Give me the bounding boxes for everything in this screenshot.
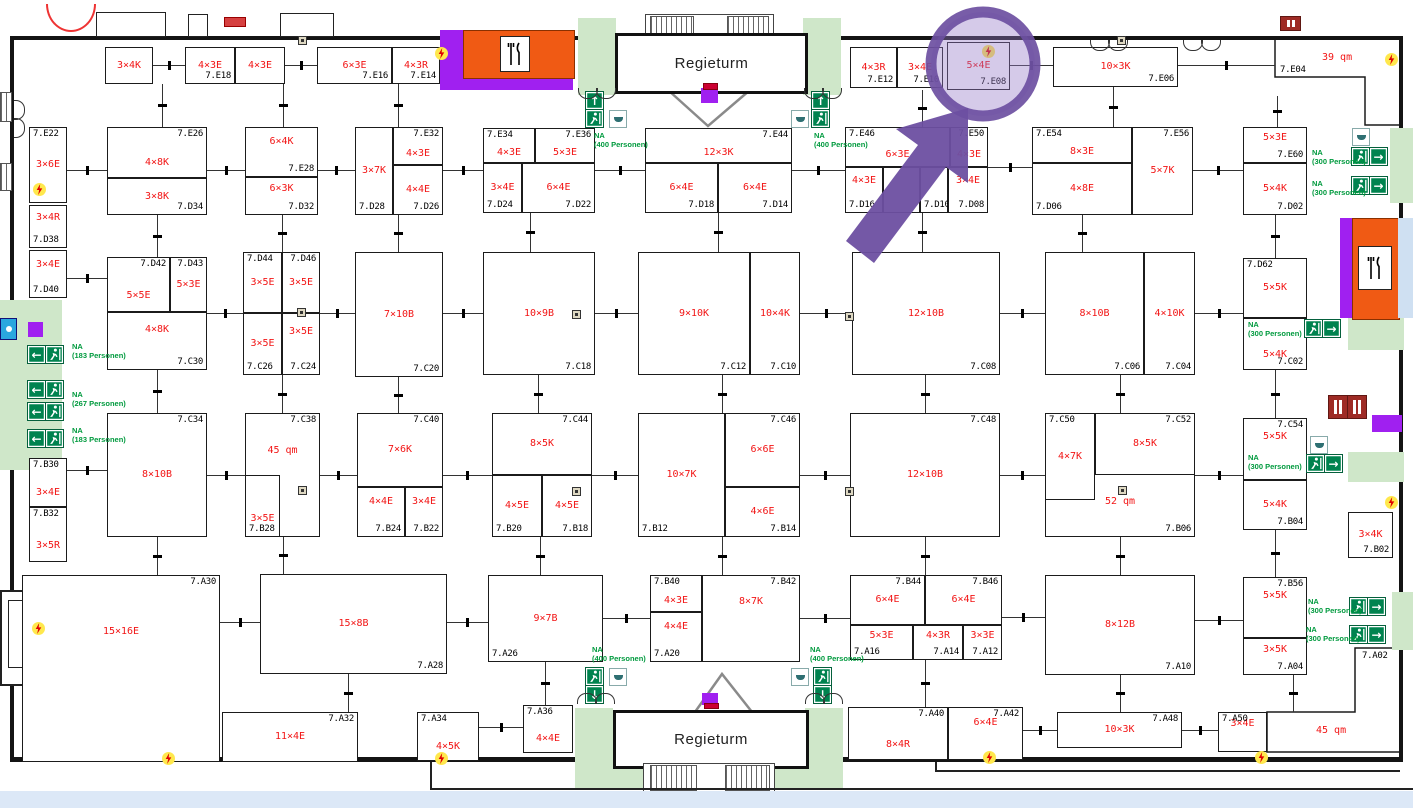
booth-7.E34[interactable]: 4×3E7.E34 xyxy=(483,128,535,163)
booth-7.A14[interactable]: 4×3R7.A14 xyxy=(913,625,963,660)
booth-7.A36[interactable]: 4×4E7.A36 xyxy=(523,705,573,753)
exit-running-man-icon xyxy=(814,668,831,685)
exit-running-man-icon xyxy=(586,668,603,685)
booth-size-label: 12×10B xyxy=(851,470,999,480)
door-swing-arc xyxy=(14,100,25,120)
booth-size-label: 4×3E xyxy=(651,596,701,606)
booth-size-label: 15×16E xyxy=(23,627,219,637)
fork-knife-icon xyxy=(1365,255,1385,281)
power-supply-icon xyxy=(1385,496,1398,509)
floor-socket-icon xyxy=(845,312,854,321)
booth-7.C26[interactable]: 3×5E7.C26 xyxy=(243,313,282,375)
booth-7.A04[interactable]: 3×5K7.A04 xyxy=(1243,638,1307,675)
blue-zone-right xyxy=(1398,218,1413,318)
dimension-tick xyxy=(1271,393,1280,396)
booth-7.D18[interactable]: 6×4E7.D18 xyxy=(645,163,718,213)
dimension-tick xyxy=(1039,726,1042,735)
booth-number-label: 7.D28 xyxy=(359,203,385,212)
booth-number-label: 7.A48 xyxy=(1152,715,1178,724)
na-capacity-label: NA(400 Personen) xyxy=(814,131,868,149)
dimension-tick xyxy=(1217,166,1220,175)
booth-7.B46[interactable]: 6×4E7.B46 xyxy=(925,575,1002,625)
marker xyxy=(704,703,719,709)
booth-size-label: 8×10B xyxy=(108,470,206,480)
booth-number-label: 7.B28 xyxy=(249,525,275,534)
booth-size-label: 3×7K xyxy=(356,166,392,176)
booth-7.D16[interactable]: 4×3E7.D16 xyxy=(845,167,883,213)
booth-number-label: 7.E26 xyxy=(177,130,203,139)
booth-number-label: 7.C08 xyxy=(970,363,996,372)
dimension-tick xyxy=(718,555,727,558)
booth-number-label: 7.A28 xyxy=(417,662,443,671)
booth-7.D06[interactable]: 4×8E7.D06 xyxy=(1032,163,1132,215)
booth-size-label: 6×3E xyxy=(846,150,949,160)
exit-arrow-icon: ← xyxy=(28,430,45,447)
dimension-tick xyxy=(1116,393,1125,396)
booth-label: 7.E04 xyxy=(1280,66,1306,75)
booth-7.D02[interactable]: 5×4K7.D02 xyxy=(1243,163,1307,215)
booth-size-label: 5×4K xyxy=(1244,500,1306,510)
power-supply-icon xyxy=(1385,53,1398,66)
booth-7.C46[interactable]: 6×6E7.C46 xyxy=(725,413,800,487)
booth-number-label: 7.B32 xyxy=(33,510,59,519)
booth-size-label: 4×3R xyxy=(393,61,439,71)
service-point xyxy=(701,88,718,103)
booth-7.C24[interactable]: 3×5E7.C24 xyxy=(282,313,320,375)
na-capacity-label: NA(183 Personen) xyxy=(72,342,126,360)
booth-7.E50[interactable]: 4×3E7.E50 xyxy=(950,127,988,167)
booth-7.C30[interactable]: 4×8K7.C30 xyxy=(107,312,207,370)
booth-size-label: 5×5K xyxy=(1244,591,1306,601)
booth-number-label: 7.E06 xyxy=(1148,75,1174,84)
emergency-exit-sign: → xyxy=(1307,455,1342,472)
dimension-tick xyxy=(224,309,227,318)
booth-7.D34[interactable]: 3×8K7.D34 xyxy=(107,178,207,215)
booth-size-label: 5×3E xyxy=(1244,133,1306,143)
booth-7.E26[interactable]: 4×8K7.E26 xyxy=(107,127,207,178)
exit-arrow-icon: → xyxy=(1370,177,1387,194)
door-swing-arc xyxy=(14,118,25,138)
booth-size-label: 6×6E xyxy=(726,445,799,455)
booth-7.E08[interactable]: 5×4E7.E08 xyxy=(947,42,1010,90)
exit-running-man-icon xyxy=(46,430,63,447)
booth-number-label: 7.C26 xyxy=(247,363,273,372)
dimension-tick xyxy=(534,393,543,396)
booth-size-label: 11×4E xyxy=(223,732,357,742)
booth-number-label: 7.E60 xyxy=(1277,151,1303,160)
booth-4×3E[interactable]: 4×3E xyxy=(235,47,285,84)
booth-7.D14[interactable]: 6×4E7.D14 xyxy=(718,163,792,213)
booth-number-label: 7.B18 xyxy=(562,525,588,534)
booth-7.B32[interactable]: 3×5R7.B32 xyxy=(29,507,67,562)
booth-7.A20[interactable]: 4×4E7.A20 xyxy=(650,612,702,662)
booth-size-label: 4×3R xyxy=(851,63,896,73)
booth-7.A26[interactable]: 9×7B7.A26 xyxy=(488,575,603,662)
na-capacity-label: NA(300 Personen) xyxy=(1308,597,1362,615)
booth-number-label: 7.E32 xyxy=(413,130,439,139)
booth-7.C06[interactable]: 8×10B7.C06 xyxy=(1045,252,1144,375)
dimension-tick xyxy=(718,393,727,396)
booth-7.C40[interactable]: 7×6K7.C40 xyxy=(357,413,443,487)
exit-arrow-icon: → xyxy=(1368,626,1385,643)
booth-size-label: 4×6E xyxy=(726,507,799,517)
booth-number-label: 7.E22 xyxy=(33,130,59,139)
exit-running-man-icon xyxy=(46,346,63,363)
dimension-tick xyxy=(1009,163,1012,172)
booth-7.A10[interactable]: 8×12B7.A10 xyxy=(1045,575,1195,675)
power-supply-icon xyxy=(32,622,45,635)
booth-7.D10[interactable]: 7.D10 xyxy=(920,167,948,213)
booth-size-label: 3×4K xyxy=(106,61,152,71)
booth-size-label: 8×3E xyxy=(1033,147,1131,157)
dimension-tick xyxy=(278,393,287,396)
regieturm-bottom-label: Regieturm xyxy=(674,731,748,748)
booth-number-label: 7.C54 xyxy=(1277,421,1303,430)
booth-number-label: 7.A40 xyxy=(918,710,944,719)
booth-7.A48[interactable]: 10×3K7.A48 xyxy=(1057,712,1182,748)
booth-7.B42[interactable]: 8×7K7.B42 xyxy=(702,575,800,662)
booth-cell[interactable] xyxy=(883,167,920,213)
toilet-fixture-right xyxy=(280,13,334,37)
stairs-top-left xyxy=(650,16,694,34)
dimension-tick xyxy=(168,61,171,70)
booth-number-label: 7.B22 xyxy=(413,525,439,534)
dimension-tick xyxy=(1218,471,1221,480)
booth-size-label: 3×5K xyxy=(1244,645,1306,655)
booth-7.B30[interactable]: 3×4E7.B30 xyxy=(29,458,67,507)
dimension-tick xyxy=(394,104,403,107)
booth-7.E12[interactable]: 4×3R7.E12 xyxy=(850,47,897,88)
booth-7.C50[interactable]: 4×7K7.C50 xyxy=(1045,413,1095,500)
water-point-icon xyxy=(0,318,17,340)
booth-number-label: 7.C40 xyxy=(413,416,439,425)
booth-number-label: 7.D43 xyxy=(177,260,203,269)
booth-7.A12[interactable]: 3×3E7.A12 xyxy=(963,625,1002,660)
escape-zone-right-bottom xyxy=(1392,592,1413,650)
booth-number-label: 7.B46 xyxy=(972,578,998,587)
booth-number-label: 7.D38 xyxy=(33,236,59,245)
booth-7.C20[interactable]: 7×10B7.C20 xyxy=(355,252,443,377)
booth-size-label: 6×4E xyxy=(646,183,717,193)
booth-size-label: 10×4K xyxy=(751,309,799,319)
booth-7.E54[interactable]: 8×3E7.E54 xyxy=(1032,127,1132,163)
booth-size-label: 6×4K xyxy=(246,137,317,147)
booth-number-label: 7.D24 xyxy=(487,201,513,210)
dimension-tick xyxy=(619,166,622,175)
booth-size-label: 5×3E xyxy=(171,280,206,290)
dimension-tick xyxy=(278,232,287,235)
booth-7.B28[interactable]: 3×5E7.B28 xyxy=(245,475,280,537)
dimension-tick xyxy=(344,692,353,695)
booth-7.D44[interactable]: 3×5E7.D44 xyxy=(243,252,282,313)
booth-number-label: 7.E14 xyxy=(410,72,436,81)
booth-7.D43[interactable]: 5×3E7.D43 xyxy=(170,257,207,312)
emergency-exit-sign: ← xyxy=(28,346,63,363)
toilet-fixture-left xyxy=(96,12,166,37)
booth-7.D22[interactable]: 6×4E7.D22 xyxy=(522,163,595,213)
booth-7.E36[interactable]: 5×3E7.E36 xyxy=(535,128,595,163)
booth-7.E44[interactable]: 12×3K7.E44 xyxy=(645,128,792,163)
regieturm-top-label: Regieturm xyxy=(675,55,749,72)
booth-number-label: 7.B40 xyxy=(654,578,680,587)
floor-socket-icon xyxy=(297,308,306,317)
dimension-tick xyxy=(918,107,927,110)
dimension-tick xyxy=(615,309,618,318)
na-capacity-label: NA(300 Personen) xyxy=(1306,625,1360,643)
booth-number-label: 7.E50 xyxy=(958,130,984,139)
booth-7.C44[interactable]: 8×5K7.C44 xyxy=(492,413,592,475)
dimension-tick xyxy=(1271,235,1280,238)
booth-7.B40[interactable]: 4×3E7.B40 xyxy=(650,575,702,612)
booth-7.E06[interactable]: 10×3K7.E06 xyxy=(1053,47,1178,87)
restaurant-top-icon-box xyxy=(500,36,530,72)
outside-line-1 xyxy=(935,770,1400,772)
booth-number-label: 7.A26 xyxy=(492,650,518,659)
booth-7.E28[interactable]: 6×4K7.E28 xyxy=(245,127,318,177)
booth-number-label: 7.B56 xyxy=(1277,580,1303,589)
service-sign-icon xyxy=(1310,436,1328,454)
service-sign-icon xyxy=(791,668,809,686)
booth-7.E14[interactable]: 4×3R7.E14 xyxy=(392,47,440,84)
dimension-tick xyxy=(1289,692,1298,695)
floor-socket-icon xyxy=(298,36,307,45)
dimension-tick xyxy=(817,166,820,175)
booth-size-label: 7×10B xyxy=(356,310,442,320)
dimension-tick xyxy=(466,618,469,627)
booth-size-label: 4×3E xyxy=(951,150,987,160)
exit-arrow-icon: → xyxy=(1323,320,1340,337)
booth-7.C08[interactable]: 12×10B7.C08 xyxy=(852,252,1000,375)
booth-number-label: 7.E12 xyxy=(867,76,893,85)
booth-size-label: 5×7K xyxy=(1133,166,1192,176)
booth-size-label: 4×3R xyxy=(914,631,962,641)
booth-7.B20[interactable]: 4×5E7.B20 xyxy=(492,475,542,537)
dimension-tick xyxy=(824,614,827,623)
dimension-tick xyxy=(337,471,340,480)
outside-line-4 xyxy=(935,762,937,771)
dimension-tick xyxy=(86,466,89,475)
stairs-top-right xyxy=(727,16,769,34)
dimension-tick xyxy=(921,393,930,396)
booth-number-label: 7.D22 xyxy=(565,201,591,210)
booth-number-label: 7.E44 xyxy=(762,131,788,140)
fire-equipment-icon xyxy=(1280,16,1301,31)
booth-number-label: 7.A14 xyxy=(933,648,959,657)
booth-size-label: 4×3E xyxy=(394,149,442,159)
booth-7.B12[interactable]: 10×7K7.B12 xyxy=(638,413,725,537)
booth-7.D28[interactable]: 3×7K7.D28 xyxy=(355,127,393,215)
booth-number-label: 7.A36 xyxy=(527,708,553,717)
booth-size-label: 5×3E xyxy=(536,148,594,158)
escape-zone-right-top xyxy=(1390,128,1413,203)
bench-icon xyxy=(224,17,246,27)
dimension-tick xyxy=(526,231,535,234)
booth-number-label: 7.D06 xyxy=(1036,203,1062,212)
service-point xyxy=(28,322,43,337)
hall-floorplan: Regieturm Regieturm 3×4K4×3E7.E184×3E6×3… xyxy=(0,0,1413,808)
booth-size-label: 7×6K xyxy=(358,445,442,455)
dimension-tick xyxy=(158,104,167,107)
booth-number-label: 7.E18 xyxy=(205,72,231,81)
booth-label: 39 qm xyxy=(1322,53,1352,63)
booth-7.D08[interactable]: 3×4E7.D08 xyxy=(948,167,988,213)
booth-7.D38[interactable]: 3×4R7.D38 xyxy=(29,205,67,248)
booth-size-label: 3×4E xyxy=(898,63,942,73)
booth-number-label: 7.C04 xyxy=(1165,363,1191,372)
booth-size-label: 8×5K xyxy=(1096,439,1194,449)
booth-7.C10[interactable]: 10×4K7.C10 xyxy=(750,252,800,375)
booth-7.A32[interactable]: 11×4E7.A32 xyxy=(222,712,358,762)
booth-label: 45 qm xyxy=(1316,726,1346,736)
booth-7.A28[interactable]: 15×8B7.A28 xyxy=(260,574,447,674)
booth-7.E32[interactable]: 4×3E7.E32 xyxy=(393,127,443,165)
booth-number-label: 7.C48 xyxy=(970,416,996,425)
booth-number-label: 7.C50 xyxy=(1049,416,1075,425)
booth-7.D40[interactable]: 3×4E7.D40 xyxy=(29,250,67,298)
booth-7.C04[interactable]: 4×10K7.C04 xyxy=(1144,252,1195,375)
exit-running-man-icon xyxy=(46,381,63,398)
booth-number-label: 7.C38 xyxy=(290,416,316,425)
booth-7.C12[interactable]: 9×10K7.C12 xyxy=(638,252,750,375)
service-sign-icon xyxy=(791,110,809,128)
booth-7.D46[interactable]: 3×5E7.D46 xyxy=(282,252,320,313)
dimension-tick xyxy=(1021,309,1024,318)
booth-size-label: 8×10B xyxy=(1046,309,1143,319)
booth-7.E10[interactable]: 3×4E7.E10 xyxy=(897,47,943,88)
booth-size-label: 6×3K xyxy=(246,184,317,194)
door-swing-arc xyxy=(822,88,842,99)
booth-size-label: 3×4K xyxy=(1349,530,1392,540)
booth-size-label: 3×5R xyxy=(30,541,66,551)
door-swing-arc xyxy=(577,693,597,704)
booth-number-label: 7.D10 xyxy=(924,201,950,210)
door-swing-arc xyxy=(1201,40,1221,51)
dimension-tick xyxy=(536,555,545,558)
booth-number-label: 7.C52 xyxy=(1165,416,1191,425)
booth-number-label: 7.D62 xyxy=(1247,261,1273,270)
booth-size-label: 4×7K xyxy=(1046,452,1094,462)
booth-number-label: 7.C10 xyxy=(770,363,796,372)
na-capacity-label: NA(183 Personen) xyxy=(72,426,126,444)
booth-7.B14[interactable]: 4×6E7.B14 xyxy=(725,487,800,537)
booth-number-label: 7.D32 xyxy=(288,203,314,212)
booth-size-label: 3×4E xyxy=(30,488,66,498)
booth-7.A30[interactable]: 15×16E7.A30 xyxy=(22,575,220,762)
booth-number-label: 7.A32 xyxy=(328,715,354,724)
dimension-tick xyxy=(225,471,228,480)
booth-number-label: 7.C18 xyxy=(565,363,591,372)
booth-number-label: 7.A50 xyxy=(1222,715,1248,724)
booth-7.B24[interactable]: 4×4E7.B24 xyxy=(357,487,405,537)
booth-size-label: 6×4E xyxy=(719,183,791,193)
booth-7.E56[interactable]: 5×7K7.E56 xyxy=(1132,127,1193,215)
booth-7.C48[interactable]: 12×10B7.C48 xyxy=(850,413,1000,537)
booth-size-label: 5×5K xyxy=(1244,283,1306,293)
booth-7.E16[interactable]: 6×3E7.E16 xyxy=(317,47,392,84)
booth-size-label: 10×3K xyxy=(1058,725,1181,735)
booth-size-label: 10×7K xyxy=(639,470,724,480)
booth-size-label: 3×6E xyxy=(30,160,66,170)
booth-3×4K[interactable]: 3×4K xyxy=(105,47,153,84)
power-supply-icon xyxy=(33,183,46,196)
booth-7.A50[interactable]: 3×4E7.A50 xyxy=(1218,712,1267,752)
booth-7.E18[interactable]: 4×3E7.E18 xyxy=(185,47,235,84)
booth-number-label: 7.A20 xyxy=(654,650,680,659)
door-swing-arc xyxy=(805,693,825,704)
dimension-tick xyxy=(1271,552,1280,555)
booth-7.B22[interactable]: 3×4E7.B22 xyxy=(405,487,443,537)
booth-7.C52[interactable]: 8×5K7.C52 xyxy=(1095,413,1195,475)
dimension-tick xyxy=(918,231,927,234)
exit-arrow-icon: ← xyxy=(28,346,45,363)
service-point xyxy=(1372,415,1402,432)
booth-7.D24[interactable]: 3×4E7.D24 xyxy=(483,163,522,213)
na-capacity-label: NA(267 Personen) xyxy=(72,390,126,408)
booth-label: 7.A02 xyxy=(1362,652,1388,661)
booth-number-label: 7.C44 xyxy=(562,416,588,425)
escape-zone-right-c54 xyxy=(1348,452,1404,482)
fire-equipment-icon xyxy=(1347,395,1367,419)
booth-7.B04[interactable]: 5×4K7.B04 xyxy=(1243,480,1307,530)
dimension-tick xyxy=(279,554,288,557)
booth-7.E60[interactable]: 5×3E7.E60 xyxy=(1243,127,1307,163)
exit-running-man-icon xyxy=(586,110,603,127)
booth-7.B56[interactable]: 5×5K7.B56 xyxy=(1243,577,1307,638)
exit-arrow-icon: → xyxy=(1368,598,1385,615)
booth-number-label: 7.E34 xyxy=(487,131,513,140)
booth-size-label: 3×5E xyxy=(244,278,281,288)
exit-arrow-icon: → xyxy=(1370,148,1387,165)
booth-number-label: 7.E54 xyxy=(1036,130,1062,139)
power-supply-icon xyxy=(982,45,995,58)
booth-7.D26[interactable]: 4×4E7.D26 xyxy=(393,165,443,215)
booth-7.B44[interactable]: 6×4E7.B44 xyxy=(850,575,925,625)
booth-number-label: 7.B12 xyxy=(642,525,668,534)
booth-number-label: 7.E28 xyxy=(288,165,314,174)
booth-7.D42[interactable]: 5×5E7.D42 xyxy=(107,257,170,312)
booth-number-label: 7.E36 xyxy=(565,131,591,140)
booth-size-label: 4×8E xyxy=(1033,184,1131,194)
booth-number-label: 7.B06 xyxy=(1165,525,1191,534)
booth-7.A34[interactable]: 4×5K7.A34 xyxy=(417,712,479,761)
booth-7.D62[interactable]: 5×5K7.D62 xyxy=(1243,258,1307,318)
door-swing-arc xyxy=(595,693,615,704)
booth-size-label: 8×5K xyxy=(493,439,591,449)
booth-number-label: 7.C34 xyxy=(177,416,203,425)
booth-number-label: 7.B44 xyxy=(895,578,921,587)
booth-7.D32[interactable]: 6×3K7.D32 xyxy=(245,177,318,215)
booth-size-label: 4×3E xyxy=(484,148,534,158)
booth-size-label: 12×3K xyxy=(646,148,791,158)
booth-size-label: 3×5E xyxy=(283,327,319,337)
outside-line-3 xyxy=(430,762,432,788)
emergency-exit-sign: ← xyxy=(28,430,63,447)
booth-number-label: 7.B24 xyxy=(375,525,401,534)
booth-size-label: 4×3E xyxy=(186,61,234,71)
booth-number-label: 7.B42 xyxy=(770,578,796,587)
booth-number-label: 7.E56 xyxy=(1163,130,1189,139)
booth-7.B18[interactable]: 4×5E7.B18 xyxy=(542,475,592,537)
booth-size-label: 6×4E xyxy=(851,595,924,605)
booth-7.B02[interactable]: 3×4K7.B02 xyxy=(1348,512,1393,558)
emergency-exit-sign: ← xyxy=(28,403,63,420)
booth-number-label: 7.C24 xyxy=(290,363,316,372)
booth-size-label: 5×5K xyxy=(1244,432,1306,442)
dimension-tick xyxy=(1109,106,1118,109)
booth-7.A40[interactable]: 8×4R7.A40 xyxy=(848,707,948,760)
emergency-exit-sign: ← xyxy=(28,381,63,398)
floor-socket-icon xyxy=(1118,486,1127,495)
